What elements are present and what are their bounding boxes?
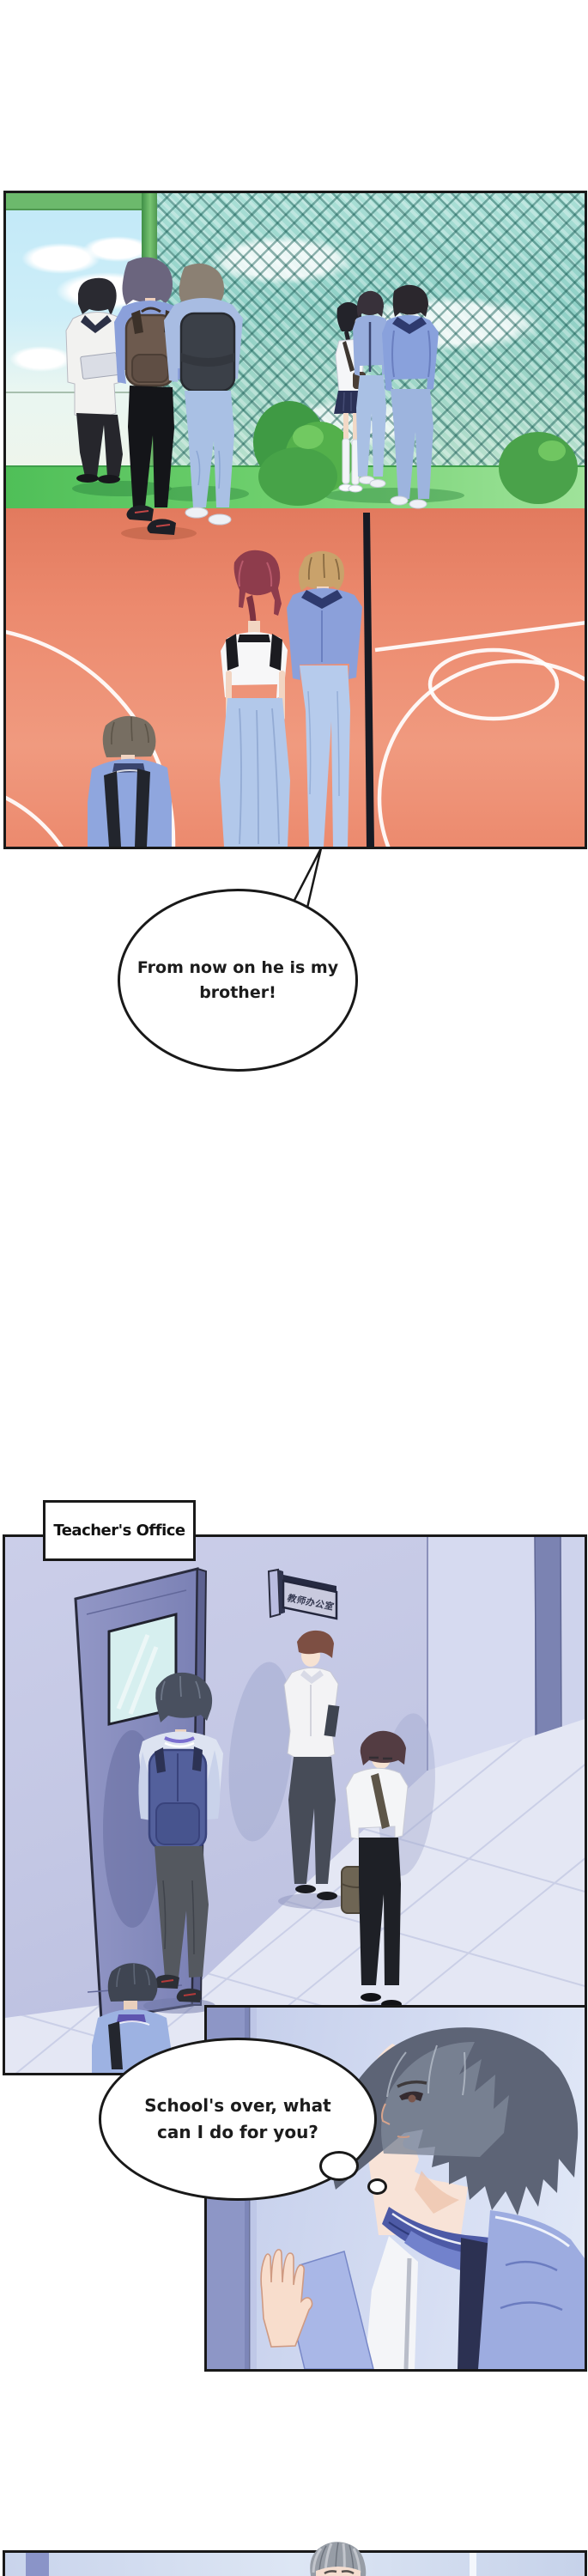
thought-circle-large — [319, 2151, 359, 2181]
wall-band — [26, 2553, 49, 2576]
speech-line-1: From now on he is my — [137, 956, 338, 981]
comic-page: From now on he is my brother! Teacher's … — [0, 0, 588, 2576]
panel2-scene: 教师办公室 — [5, 1537, 585, 2073]
office-door-sign: 教师办公室 — [269, 1570, 336, 1619]
caption-box: Teacher's Office — [43, 1500, 196, 1561]
boy-foreground-backpack — [88, 716, 172, 847]
student-boy-middle — [353, 291, 391, 488]
speech-bubble: From now on he is my brother! — [118, 889, 358, 1072]
speech-line-2: brother! — [137, 981, 338, 1005]
panel1-figures — [6, 193, 585, 847]
court-pole — [363, 513, 374, 847]
student-dark-backpack — [164, 264, 243, 525]
teacher-figure — [66, 278, 126, 483]
panel-basketball-court — [3, 191, 587, 849]
thought-line-1: School's over, what — [144, 2093, 330, 2119]
wall-highlight-line — [470, 2553, 476, 2576]
gray-haired-man-head — [302, 2538, 374, 2576]
boy-blond — [287, 551, 362, 847]
student-boy-tall — [382, 285, 439, 508]
girl-red-hair — [220, 550, 290, 847]
thought-circle-small — [367, 2178, 387, 2195]
panel-bottom-partial — [3, 2550, 587, 2576]
panel-teachers-office-hallway: 教师办公室 — [3, 1534, 587, 2075]
thought-line-2: can I do for you? — [144, 2119, 330, 2146]
caption-text: Teacher's Office — [53, 1522, 185, 1540]
